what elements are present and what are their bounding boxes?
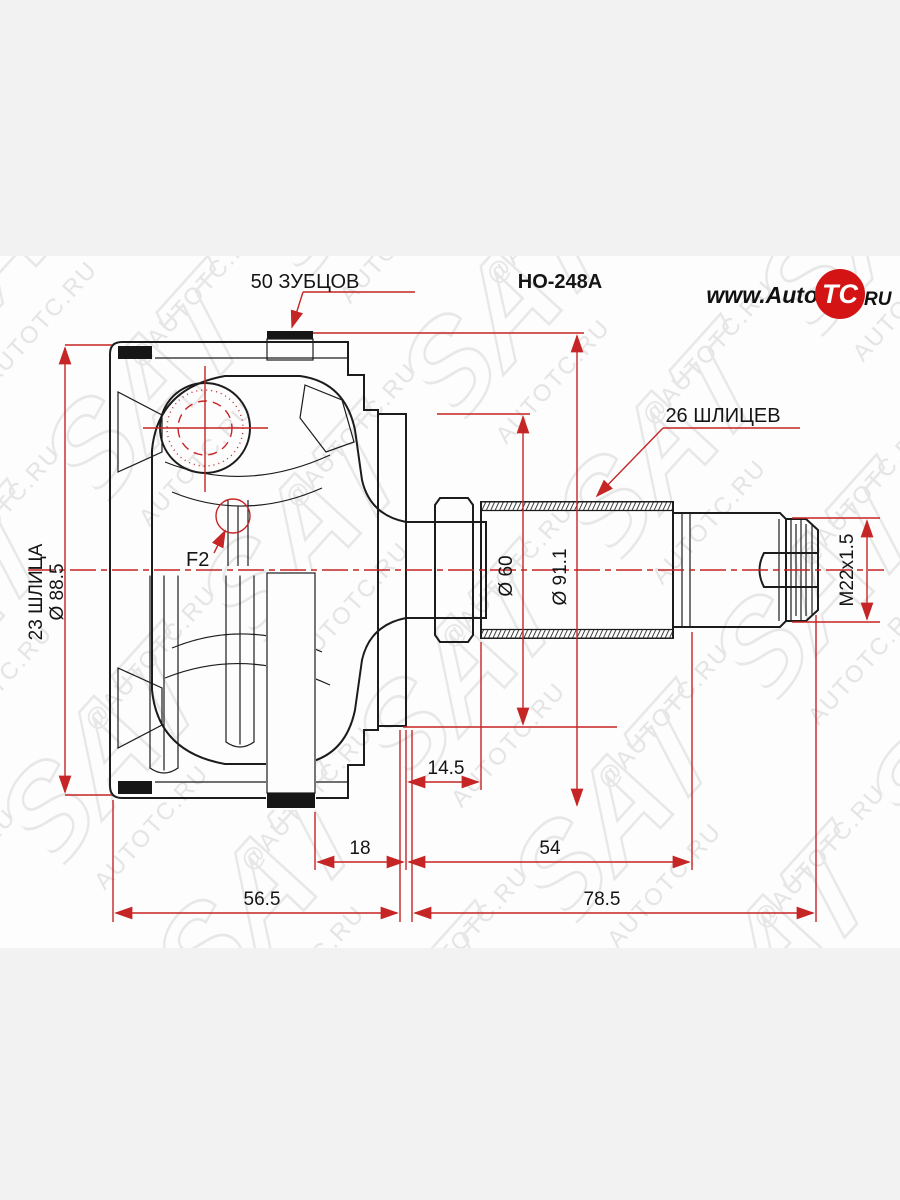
logo-suffix: RU (864, 289, 893, 310)
thread-value: M22x1.5 (837, 534, 858, 607)
boot-clamp-top (118, 346, 152, 359)
logo-prefix: www.Auto (706, 282, 818, 308)
boot-groove-value: 14.5 (428, 758, 465, 779)
spline-length-value: 54 (539, 838, 561, 859)
part-number: HO-248A (518, 271, 602, 293)
outer-teeth-label: 50 ЗУБЦОВ (251, 271, 360, 293)
housing-length-value: 56.5 (244, 889, 281, 910)
shaft-splines-label: 26 ШЛИЦЕВ (665, 405, 780, 427)
watermark-layer (0, 256, 900, 948)
screenshot-root: AUTOTC.RU @AUTOTC.RU SAT (0, 0, 900, 1200)
boot-clamp-bottom (118, 781, 152, 794)
boot-seat-diameter-value: Ø 60 (496, 555, 517, 596)
snap-ring-label: F2 (186, 549, 209, 571)
cv-joint-technical-drawing: AUTOTC.RU @AUTOTC.RU SAT (0, 0, 900, 1200)
shaft-length-value: 78.5 (584, 889, 621, 910)
inner-splines-label: 23 ШЛИЦА (26, 543, 47, 640)
housing-diameter-value: Ø 88.5 (47, 563, 68, 620)
ring-offset-value: 18 (349, 838, 370, 859)
logo-badge-text: TC (822, 279, 858, 309)
abs-ring-teeth (266, 571, 316, 810)
ring-diameter-value: Ø 91.1 (550, 548, 571, 605)
